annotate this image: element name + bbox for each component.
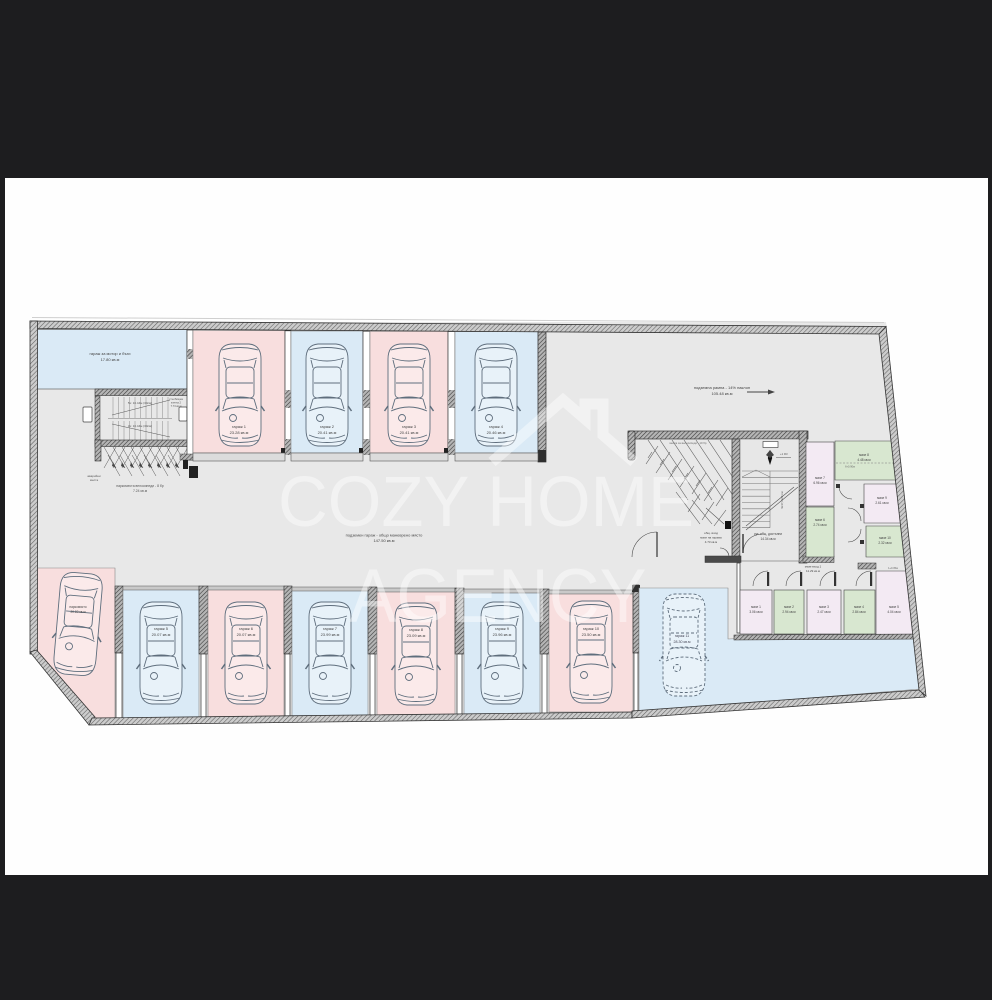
svg-text:20.41 кв.м: 20.41 кв.м [400, 430, 419, 435]
svg-text:AGENCY: AGENCY [350, 554, 647, 639]
svg-text:мазе 2: мазе 2 [784, 605, 794, 609]
svg-text:мазе на гаража: мазе на гаража [700, 535, 722, 539]
svg-text:гараж 6: гараж 6 [239, 626, 254, 631]
svg-text:20.07 кв.м: 20.07 кв.м [237, 632, 256, 637]
svg-text:4.04 кв.м: 4.04 кв.м [887, 610, 900, 614]
svg-text:2.32 кв.м: 2.32 кв.м [878, 541, 891, 545]
svg-text:2.74 кв.м: 2.74 кв.м [813, 523, 826, 527]
svg-text:28.30 кв.м: 28.30 кв.м [674, 640, 691, 644]
svg-text:подземна рампа - 14% наклон: подземна рампа - 14% наклон [694, 385, 750, 390]
svg-text:мазе 5: мазе 5 [889, 605, 899, 609]
svg-text:сут. общ. достъпни: сут. общ. достъпни [754, 532, 782, 536]
svg-text:мазе вход 1: мазе вход 1 [805, 565, 822, 569]
svg-text:гараж 11: гараж 11 [675, 634, 689, 638]
svg-text:11.29 кв.м: 11.29 кв.м [806, 569, 820, 573]
svg-text:23.99 кв.м: 23.99 кв.м [321, 632, 340, 637]
svg-text:стълбищна: стълбищна [169, 397, 183, 401]
svg-text:20.41 кв.м: 20.41 кв.м [318, 430, 337, 435]
svg-text:14.34 кв.м: 14.34 кв.м [760, 537, 775, 541]
svg-text:места: места [90, 478, 99, 482]
svg-text:COZY HOME: COZY HOME [278, 463, 694, 542]
svg-text:1+0.05м: 1+0.05м [888, 566, 898, 570]
svg-text:места за велосипеди - 10 бр: места за велосипеди - 10 бр [670, 441, 707, 445]
svg-text:гараж 7: гараж 7 [323, 626, 338, 631]
svg-text:мазе 8: мазе 8 [859, 453, 869, 457]
svg-text:9х17,6х28 см: 9х17,6х28 см [780, 491, 784, 508]
svg-text:17.80 кв.м: 17.80 кв.м [101, 357, 120, 362]
svg-text:20.46 кв.м: 20.46 кв.м [487, 430, 506, 435]
svg-text:3х: 16.44м (30см): 3х: 16.44м (30см) [128, 424, 152, 428]
svg-text:2.61 кв.м: 2.61 кв.м [875, 501, 888, 505]
svg-text:гараж за мотор и бъги: гараж за мотор и бъги [90, 351, 131, 356]
svg-text:мазе 1: мазе 1 [751, 605, 761, 609]
svg-text:мазе 7: мазе 7 [815, 476, 825, 480]
svg-text:гараж 5: гараж 5 [154, 626, 169, 631]
svg-text:20.80 кв.м: 20.80 кв.м [70, 610, 85, 614]
svg-text:гараж 3: гараж 3 [402, 424, 417, 429]
svg-text:6+0.90м: 6+0.90м [845, 465, 855, 469]
svg-text:2.94 кв.м: 2.94 кв.м [782, 610, 795, 614]
svg-text:мазе 9: мазе 9 [877, 496, 887, 500]
svg-text:105.48 кв.м: 105.48 кв.м [711, 391, 732, 396]
svg-text:5х: 16.44м (30см): 5х: 16.44м (30см) [128, 401, 152, 405]
svg-text:гараж 2: гараж 2 [320, 424, 335, 429]
svg-text:4.73 кв.м: 4.73 кв.м [705, 540, 717, 544]
svg-text:2.84 кв.м: 2.84 кв.м [852, 610, 865, 614]
svg-text:+1 R3: +1 R3 [780, 452, 788, 456]
svg-text:2.47 кв.м: 2.47 кв.м [817, 610, 830, 614]
svg-text:4.48 кв.м: 4.48 кв.м [857, 458, 870, 462]
svg-text:3.06 кв.м: 3.06 кв.м [749, 610, 762, 614]
svg-text:мазе 10: мазе 10 [879, 536, 891, 540]
svg-text:паркомясто: паркомясто [69, 605, 86, 609]
svg-text:общ. вход: общ. вход [704, 531, 718, 535]
svg-text:6.96 кв.м: 6.96 кв.м [813, 481, 826, 485]
svg-text:23.28 кв.м: 23.28 кв.м [230, 430, 249, 435]
svg-text:мазе 4: мазе 4 [854, 605, 864, 609]
svg-text:клетка 2: клетка 2 [171, 400, 182, 404]
svg-text:паркоместа велосипеди - 8 бр: паркоместа велосипеди - 8 бр [116, 484, 164, 488]
svg-text:мазе 6: мазе 6 [815, 518, 825, 522]
svg-text:7.24 кв.м: 7.24 кв.м [133, 489, 148, 493]
svg-text:гараж 1: гараж 1 [232, 424, 247, 429]
svg-text:гараж 4: гараж 4 [489, 424, 504, 429]
svg-text:20.07 кв.м: 20.07 кв.м [152, 632, 171, 637]
svg-text:мазе 3: мазе 3 [819, 605, 829, 609]
